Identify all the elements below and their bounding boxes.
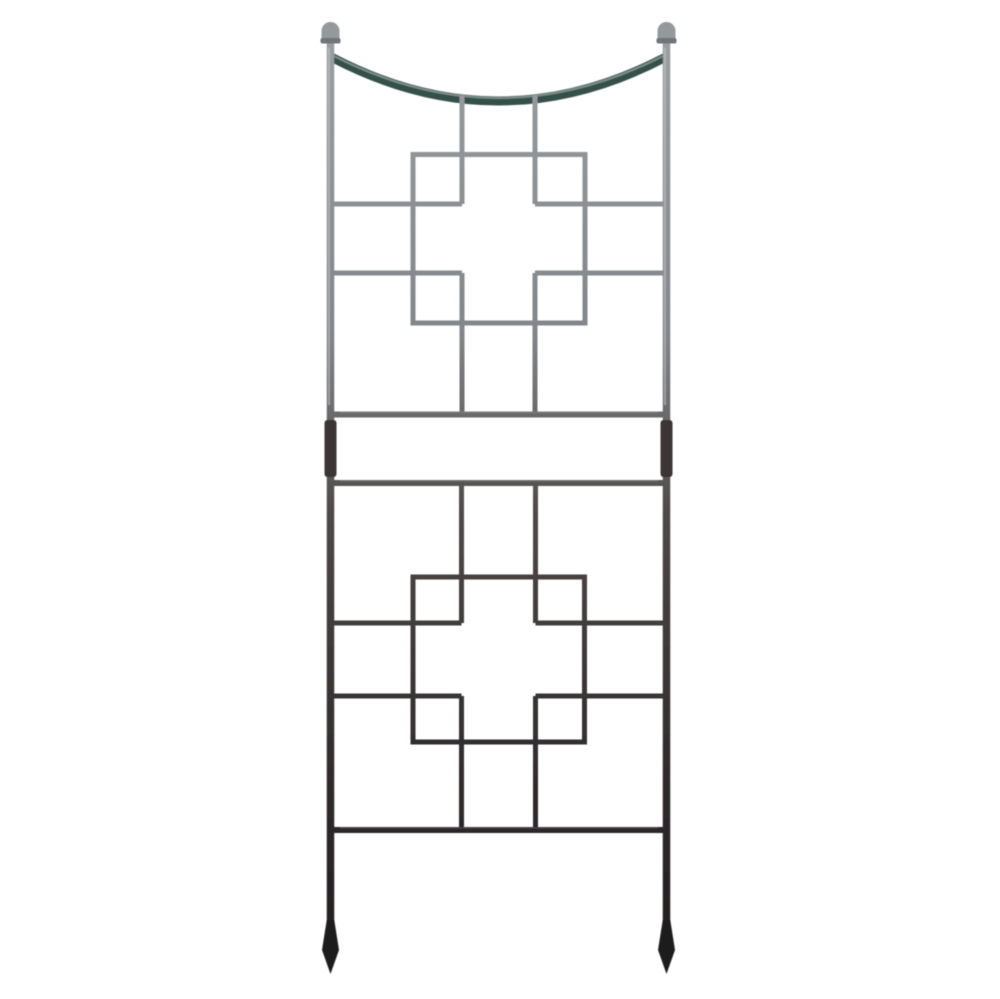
product-photo (0, 0, 1000, 999)
post-coupler-sleeve (325, 420, 337, 477)
lower-lattice-panel (334, 483, 666, 830)
upper-lattice-panel (334, 95, 666, 414)
finial-ball (658, 22, 676, 39)
post-coupler-sleeve (661, 420, 673, 477)
lattice-outer-square (413, 155, 585, 324)
middle-rails (330, 415, 667, 484)
finial-collar (657, 38, 677, 44)
spear-foot-left (322, 920, 339, 974)
trellis-illustration (0, 0, 1000, 999)
finial-collar (321, 38, 341, 44)
spear-foot-right (658, 920, 675, 974)
top-arch (333, 58, 664, 101)
finial-ball (322, 22, 340, 39)
posts (331, 42, 667, 932)
trellis (321, 22, 677, 974)
top-arch-highlight (333, 56, 664, 99)
lattice-outer-square (413, 577, 585, 742)
